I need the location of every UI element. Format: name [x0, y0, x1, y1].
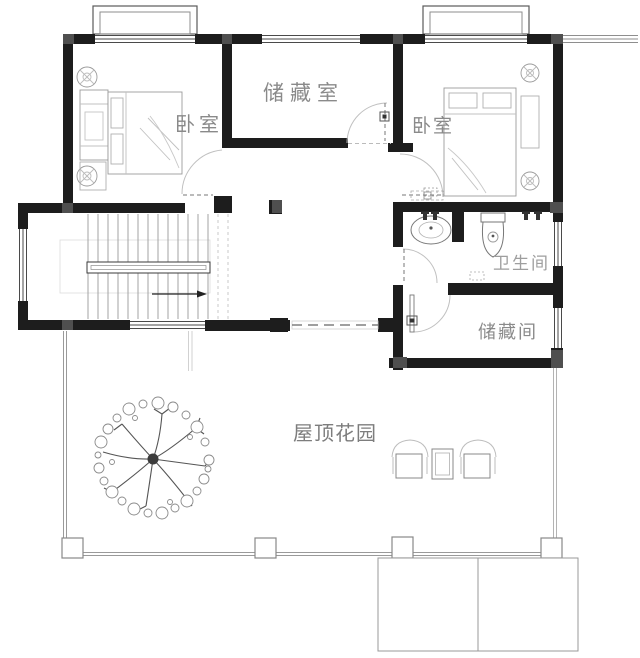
furniture-bedroom-left — [77, 67, 182, 190]
washbasin-icon — [411, 216, 451, 244]
double-bed-icon — [108, 92, 182, 174]
toilet-icon — [481, 213, 505, 257]
tree-trunk — [148, 454, 159, 465]
potted-plant-icon — [521, 64, 539, 82]
door-storage-small — [407, 295, 450, 332]
direction-arrow-icon — [152, 291, 207, 298]
floor-plan: 卧室 储藏室 卧室 卫生间 储藏间 屋顶花园 — [0, 0, 640, 658]
garden-seating — [392, 440, 496, 479]
door-storage-room — [347, 103, 391, 144]
room-label-storage-room: 储藏室 — [263, 82, 344, 105]
potted-plant-icon — [521, 172, 539, 190]
staircase — [60, 214, 228, 371]
stair-treads-upper-flight — [218, 214, 228, 319]
bathroom-fixtures — [411, 191, 542, 257]
tree-icon — [94, 397, 214, 519]
bay-window-left — [93, 6, 197, 34]
room-label-storage-small: 储藏间 — [478, 322, 538, 342]
parapet-post — [62, 537, 562, 558]
room-label-bathroom: 卫生间 — [493, 254, 550, 273]
door-bathroom — [403, 249, 484, 283]
floor-plan-svg: 卧室 储藏室 卧室 卫生间 储藏间 屋顶花园 — [0, 0, 640, 658]
drain-pipe-lines — [189, 331, 193, 371]
stair-handrail — [87, 262, 210, 273]
armchair-icon — [460, 440, 496, 478]
door-bedroom-right — [400, 154, 443, 197]
wardrobe-icon — [80, 90, 108, 160]
door-bedroom-left — [182, 150, 222, 195]
armchair-icon — [392, 440, 428, 478]
potted-plant-icon — [77, 67, 97, 87]
roof-garden-boundary — [62, 331, 578, 651]
side-table-icon — [432, 449, 453, 479]
roof-slab-icon — [378, 558, 578, 651]
bay-window-right — [423, 6, 529, 34]
dresser-icon — [521, 96, 539, 148]
room-label-bedroom-right: 卧室 — [412, 115, 454, 137]
room-label-bedroom-left: 卧室 — [175, 113, 223, 136]
furniture-bedroom-right — [444, 64, 539, 196]
sliding-door-garden — [292, 321, 378, 329]
double-bed-icon — [444, 88, 516, 196]
room-label-roof-garden: 屋顶花园 — [293, 422, 377, 445]
